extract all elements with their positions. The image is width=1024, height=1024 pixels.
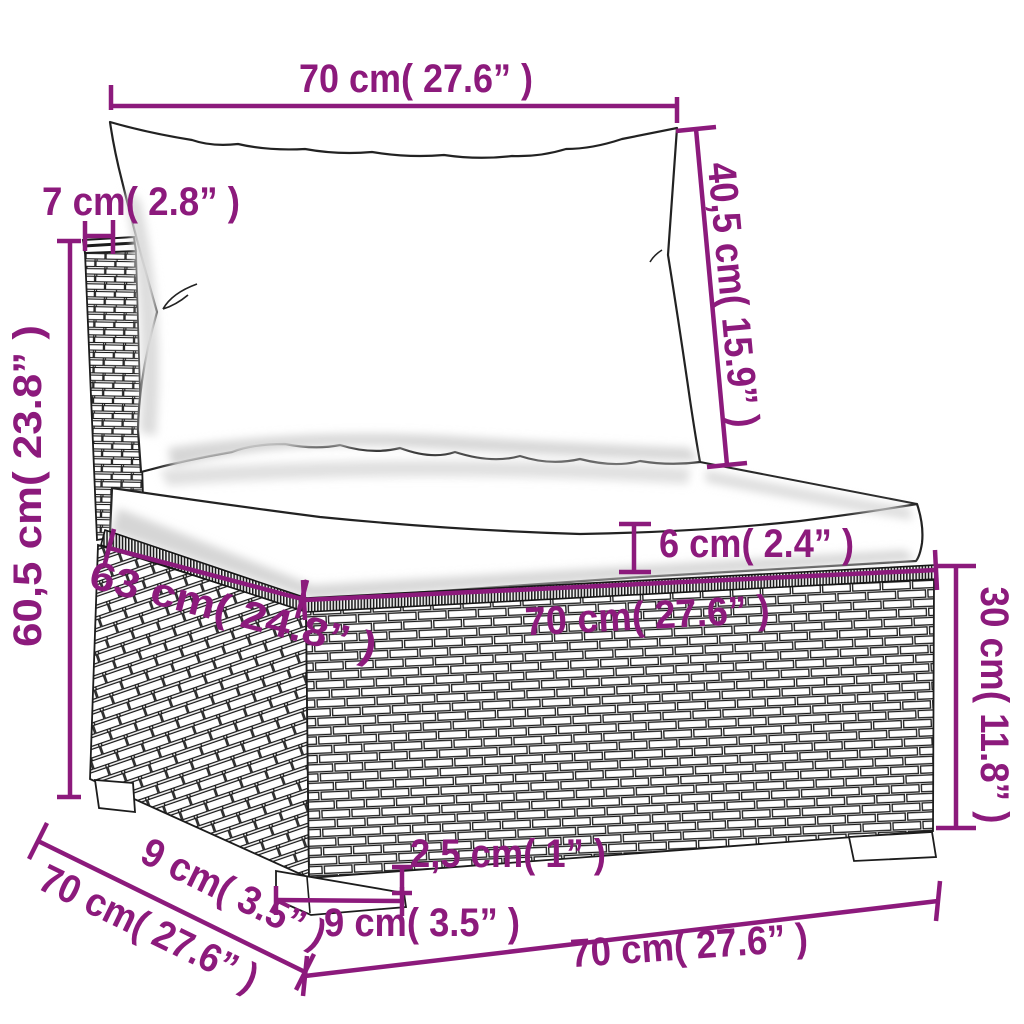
svg-text:6 cm( 2.4” ): 6 cm( 2.4” ) — [659, 522, 854, 566]
svg-text:9 cm( 3.5” ): 9 cm( 3.5” ) — [324, 901, 520, 945]
svg-text:60,5 cm( 23.8” ): 60,5 cm( 23.8” ) — [6, 325, 50, 647]
svg-text:70 cm( 27.6” ): 70 cm( 27.6” ) — [299, 57, 533, 101]
svg-text:2,5 cm( 1” ): 2,5 cm( 1” ) — [410, 832, 606, 876]
svg-text:30 cm( 11.8” ): 30 cm( 11.8” ) — [972, 587, 1016, 824]
svg-text:7 cm( 2.8” ): 7 cm( 2.8” ) — [42, 180, 240, 224]
